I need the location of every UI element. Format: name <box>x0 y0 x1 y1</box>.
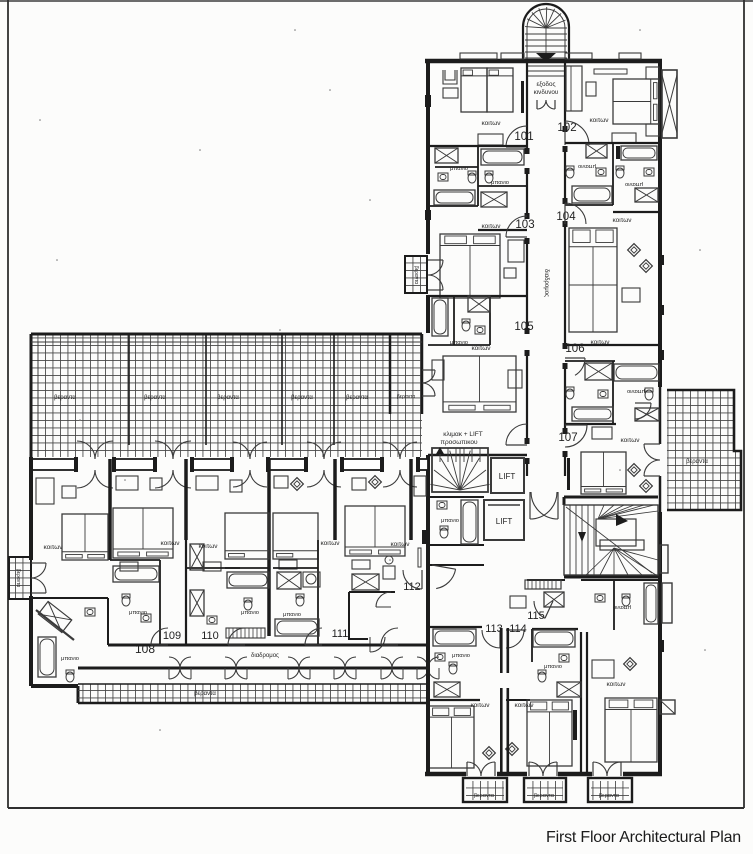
svg-text:βεραντα: βεραντα <box>599 793 620 799</box>
svg-text:κλιμακ + LIFT: κλιμακ + LIFT <box>443 431 482 438</box>
svg-text:μπανιο: μπανιο <box>450 340 468 346</box>
svg-text:106: 106 <box>565 343 584 355</box>
svg-text:κοιτων: κοιτων <box>589 117 608 124</box>
svg-text:κοιτων: κοιτων <box>481 120 500 127</box>
svg-text:διαδρομος: διαδρομος <box>251 653 279 659</box>
svg-text:μπανιο: μπανιο <box>441 518 459 524</box>
svg-text:LIFT: LIFT <box>496 517 513 526</box>
svg-text:μπανιο: μπανιο <box>450 166 468 172</box>
svg-text:κοιτων: κοιτων <box>612 217 631 224</box>
svg-text:μπανιο: μπανιο <box>491 180 509 186</box>
svg-text:βεραντα: βεραντα <box>217 395 239 401</box>
svg-text:101: 101 <box>514 131 533 143</box>
svg-text:βεραντα: βεραντα <box>413 266 419 284</box>
svg-text:μπανιο: μπανιο <box>241 610 259 616</box>
svg-text:κοιτων: κοιτων <box>481 223 500 230</box>
svg-text:βεραντα: βεραντα <box>194 691 216 697</box>
svg-text:μπανιο: μπανιο <box>129 610 147 616</box>
svg-text:110: 110 <box>201 630 219 642</box>
svg-text:105: 105 <box>514 321 533 333</box>
svg-text:εξοδος: εξοδος <box>536 81 555 88</box>
svg-text:βεραντα: βεραντα <box>291 395 313 401</box>
svg-text:μπανιο: μπανιο <box>625 181 643 187</box>
svg-text:κοιτων: κοιτων <box>471 345 490 352</box>
svg-text:κοιτων: κοιτων <box>620 437 639 444</box>
svg-text:κοιτων: κοιτων <box>160 540 179 547</box>
svg-text:μπανιο: μπανιο <box>283 612 301 618</box>
svg-text:103: 103 <box>515 219 534 231</box>
svg-text:βεραντα: βεραντα <box>346 395 368 401</box>
svg-text:μπανιο: μπανιο <box>452 653 470 659</box>
svg-text:προσωπικου: προσωπικου <box>440 439 478 446</box>
svg-text:βεραντα: βεραντα <box>474 793 495 799</box>
svg-text:κοιτων: κοιτων <box>43 544 62 551</box>
svg-text:βεραντα: βεραντα <box>15 569 21 587</box>
svg-text:109: 109 <box>163 630 181 642</box>
svg-text:107: 107 <box>558 432 577 444</box>
svg-text:μπανιο: μπανιο <box>61 656 79 662</box>
svg-text:First Floor Architectural Plan: First Floor Architectural Plan <box>546 829 741 846</box>
svg-text:βεραντα: βεραντα <box>397 394 415 400</box>
svg-text:κοιτων: κοιτων <box>390 541 409 548</box>
svg-text:κινδυνου: κινδυνου <box>534 89 559 96</box>
svg-text:μπανιο: μπανιο <box>627 388 645 394</box>
svg-text:κοιτων: κοιτων <box>606 681 625 688</box>
svg-text:κοιτων: κοιτων <box>590 339 609 346</box>
svg-text:μπανιο: μπανιο <box>613 604 631 610</box>
svg-text:μπανιο: μπανιο <box>578 163 596 169</box>
svg-text:115: 115 <box>527 610 545 622</box>
svg-text:μπανιο: μπανιο <box>544 664 562 670</box>
svg-text:βεραντα: βεραντα <box>534 793 555 799</box>
svg-text:βεραντα: βεραντα <box>686 459 708 465</box>
svg-text:102: 102 <box>557 122 576 134</box>
svg-text:112: 112 <box>403 581 421 593</box>
svg-text:111: 111 <box>332 628 349 640</box>
svg-text:βεραντα: βεραντα <box>54 395 76 401</box>
svg-text:104: 104 <box>556 211 576 223</box>
svg-text:LIFT: LIFT <box>499 472 516 481</box>
svg-text:διαδρομος: διαδρομος <box>543 269 549 297</box>
svg-text:βεραντα: βεραντα <box>144 395 166 401</box>
svg-text:κοιτων: κοιτων <box>320 540 339 547</box>
